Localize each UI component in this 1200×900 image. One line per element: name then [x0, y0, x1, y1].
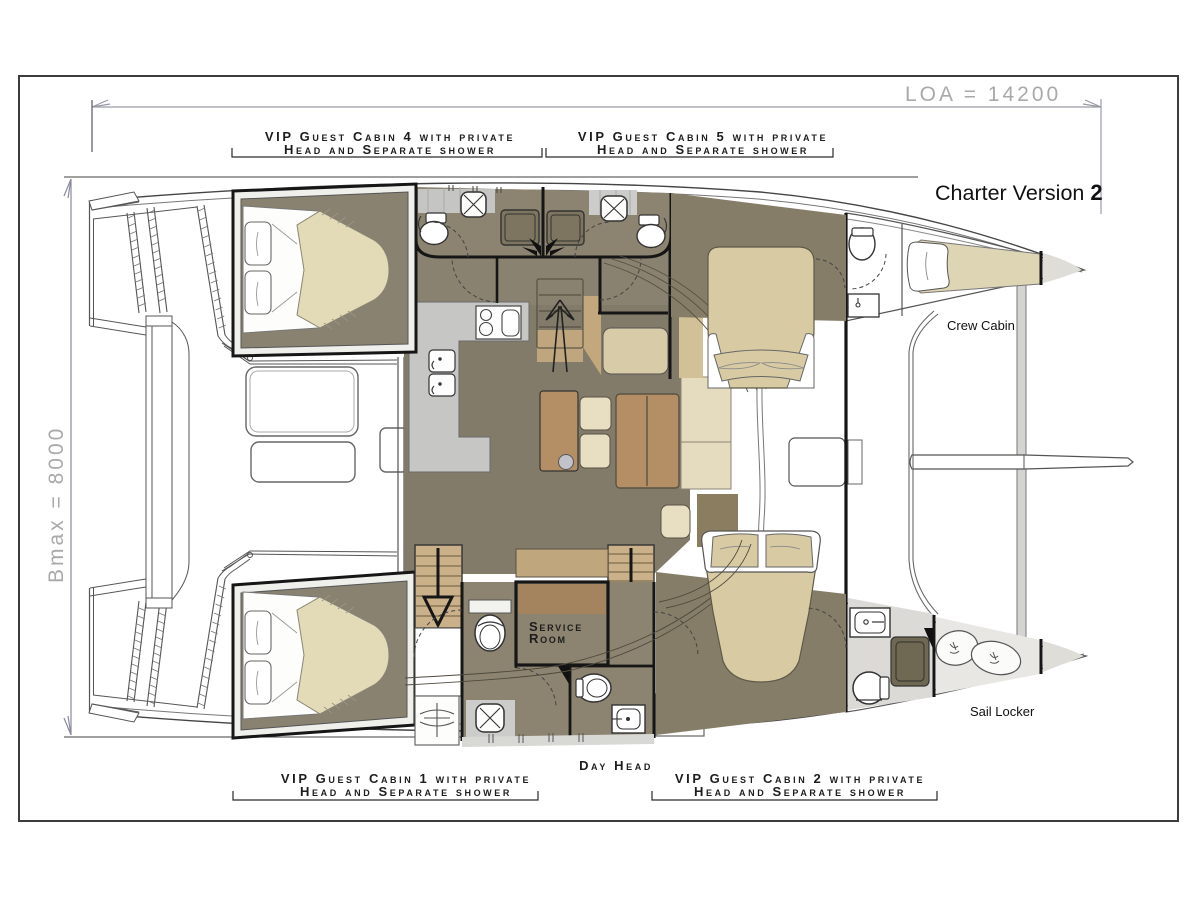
svg-text:Charter Version 2: Charter Version 2 — [935, 180, 1103, 205]
svg-text:Head and Separate shower: Head and Separate shower — [284, 142, 496, 157]
svg-text:LOA = 14200: LOA = 14200 — [905, 83, 1061, 106]
svg-text:Sail Locker: Sail Locker — [970, 704, 1035, 719]
svg-text:Bmax = 8000: Bmax = 8000 — [45, 426, 68, 583]
svg-text:Head and Separate shower: Head and Separate shower — [300, 784, 512, 799]
svg-text:Head and Separate shower: Head and Separate shower — [694, 784, 906, 799]
svg-text:Head and Separate shower: Head and Separate shower — [597, 142, 809, 157]
svg-text:Day Head: Day Head — [579, 758, 653, 773]
svg-text:Crew Cabin: Crew Cabin — [947, 318, 1015, 333]
svg-text:Room: Room — [529, 631, 567, 646]
